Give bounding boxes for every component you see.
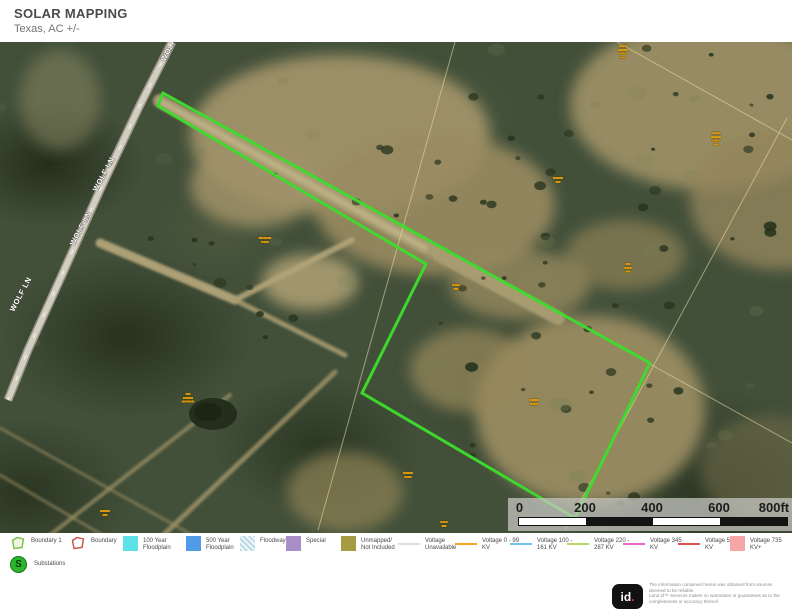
legend-swatch — [510, 543, 532, 545]
page-subtitle: Texas, AC +/- — [14, 23, 80, 35]
scale-bar-segment — [720, 518, 787, 525]
page-title: SOLAR MAPPING — [14, 6, 128, 21]
legend-item-label: Voltage 735 KV+ — [750, 536, 790, 551]
substations-label: Substations — [34, 561, 65, 568]
legend-item-label: Special — [306, 536, 346, 545]
substation-icon: S — [10, 556, 27, 573]
header: SOLAR MAPPING Texas, AC +/- — [0, 0, 792, 42]
legend-item: Special — [286, 536, 346, 551]
disclaimer: id. The information contained herein was… — [612, 582, 792, 612]
legend-swatch — [123, 536, 138, 551]
legend-item: Voltage 735 KV+ — [730, 536, 790, 551]
legend-swatch — [398, 543, 420, 545]
legend-swatch-boundary — [70, 536, 86, 551]
parcel-label: ▄▄▄▄▄▄▄▄▄▄▄ — [182, 391, 195, 404]
legend-swatch — [567, 543, 589, 545]
scale-tick-label: 600 — [708, 500, 730, 515]
logo-dot: . — [631, 590, 634, 604]
legend-swatch — [341, 536, 356, 551]
map-canvas[interactable]: WOLF LNWOLF LNWOLF LNWOLF LN▄▄▄▄▄▄▄▄▄▄▄▄… — [0, 42, 792, 533]
scale-bar-segment — [519, 518, 586, 525]
road-label: WOLF LN — [8, 275, 34, 312]
legend-item: 500 Year Floodplain — [186, 536, 246, 551]
legend-item: Unmapped/ Not Included — [341, 536, 401, 551]
scale-tick-label: 800ft — [759, 500, 789, 515]
legend-substations-row: S Substations — [10, 556, 65, 573]
solar-mapping-app: SOLAR MAPPING Texas, AC +/- WOLF LNWOLF … — [0, 0, 792, 612]
legend-swatch — [623, 543, 645, 545]
scale-tick-label: 0 — [516, 500, 523, 515]
parcel-label: ▄▄▄▄▄ — [440, 519, 448, 528]
legend-item: 100 Year Floodplain — [123, 536, 183, 551]
scale-tick-label: 400 — [641, 500, 663, 515]
scale-bar-segment — [653, 518, 720, 525]
legend-swatch — [730, 536, 745, 551]
parcel-label: ▄▄▄▄▄▄ — [100, 508, 111, 517]
legend-swatch — [240, 536, 255, 551]
scale-tick-label: 200 — [574, 500, 596, 515]
scale-bar: 0200400600800ft — [508, 498, 792, 531]
legend-item-label: 100 Year Floodplain — [143, 536, 183, 551]
parcel-label: ▄▄▄▄▄▄▄ — [403, 470, 414, 479]
legend-swatch — [678, 543, 700, 545]
legend-item: Boundary — [70, 536, 131, 551]
map-viewport[interactable]: WOLF LNWOLF LNWOLF LNWOLF LN▄▄▄▄▄▄▄▄▄▄▄▄… — [0, 42, 792, 533]
scale-bar-segment — [586, 518, 653, 525]
legend-item-label: Boundary 1 — [31, 536, 71, 545]
parcel-label: ▄▄▄▄▄▄ — [553, 175, 564, 184]
scale-bar-bar — [518, 517, 788, 526]
disclaimer-text: The information contained herein was obt… — [649, 582, 791, 604]
legend: Boundary 1Boundary100 Year Floodplain500… — [0, 533, 792, 612]
legend-swatch — [186, 536, 201, 551]
legend-item: Boundary 1 — [10, 536, 71, 551]
legend-swatch — [455, 543, 477, 545]
legend-swatch — [286, 536, 301, 551]
legend-row: Boundary 1Boundary100 Year Floodplain500… — [0, 536, 792, 554]
road-label: WOLF LN — [159, 42, 185, 63]
legend-swatch-boundary1 — [10, 536, 26, 551]
legend-item-label: Unmapped/ Not Included — [361, 536, 401, 551]
land-id-logo: id. — [612, 584, 643, 609]
